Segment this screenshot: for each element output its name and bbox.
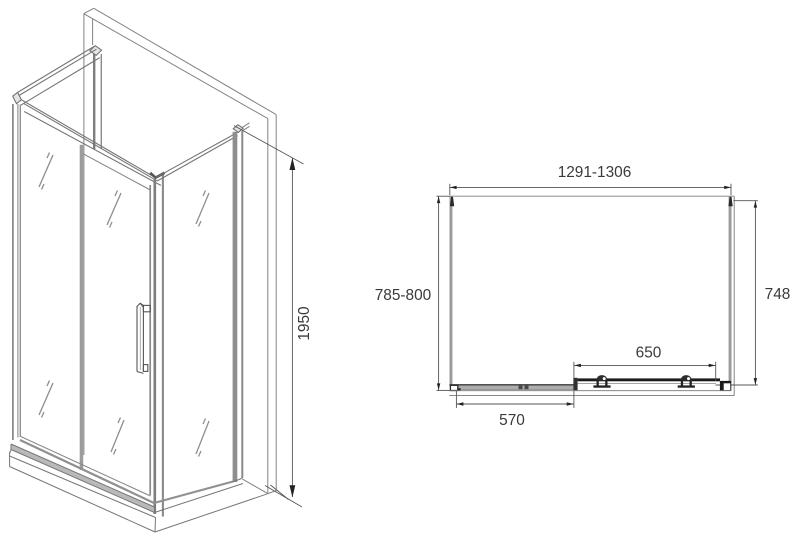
svg-text:1950: 1950 [296,306,313,340]
svg-text:1291-1306: 1291-1306 [558,164,632,181]
svg-text:748: 748 [765,286,791,303]
svg-text:570: 570 [499,412,525,429]
svg-text:785-800: 785-800 [375,287,431,304]
svg-text:650: 650 [636,345,662,362]
